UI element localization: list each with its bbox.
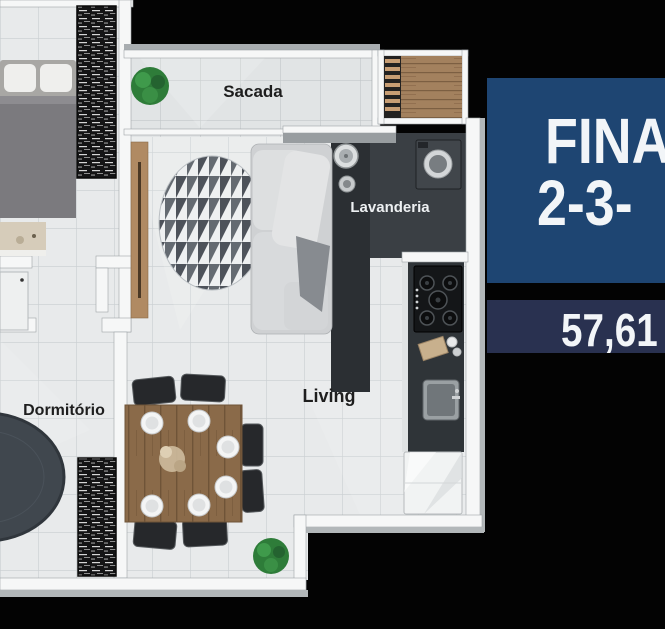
dining-chair: [132, 376, 176, 406]
sofa: [251, 144, 332, 334]
room-label-living: Living: [303, 386, 356, 406]
promo-headline-line2: 2-3-: [537, 171, 633, 235]
room-label-lavanderia: Lavanderia: [350, 199, 430, 216]
pillow: [4, 64, 36, 92]
room-label-dormitorio: Dormitório: [23, 402, 105, 419]
area-banner: 57,61: [487, 300, 665, 353]
room-label-sacada: Sacada: [223, 82, 283, 101]
dining-chair: [180, 374, 225, 402]
tv: [138, 162, 141, 298]
plant-balcony: [131, 67, 169, 105]
laundry-cabinet: [331, 137, 370, 392]
dining-chair: [241, 424, 263, 466]
dining-chair: [133, 518, 177, 550]
plant-dining: [253, 538, 289, 574]
washing-machine: [416, 140, 461, 189]
screenshot-stage: Sacada Lavanderia Living Dormitório FINA…: [0, 0, 665, 629]
promo-banner: FINA 2-3-: [487, 78, 665, 283]
dining-chair: [240, 469, 265, 512]
kitchen-sink: [423, 380, 460, 420]
promo-headline-line1: FINA: [545, 109, 665, 173]
cooktop: [414, 266, 462, 332]
vanity-desk: [0, 222, 46, 252]
bed-blanket: [0, 96, 76, 218]
dresser: [0, 272, 28, 330]
wardrobe: [77, 6, 116, 178]
floor-plan: Sacada Lavanderia Living Dormitório: [0, 0, 490, 629]
geometric-rug: [159, 156, 265, 290]
fridge: [404, 452, 462, 514]
wardrobe: [78, 458, 116, 576]
service-deck: [384, 56, 462, 118]
pillow: [40, 64, 72, 92]
area-value: 57,61: [561, 307, 658, 353]
